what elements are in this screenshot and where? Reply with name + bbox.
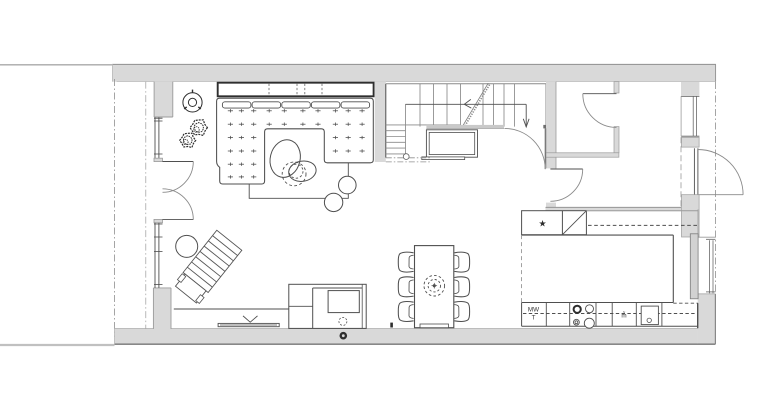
svg-text:T: T: [532, 315, 536, 322]
svg-text:MW: MW: [528, 307, 539, 314]
svg-text:★: ★: [538, 219, 546, 229]
svg-text:m̃: m̃: [621, 311, 626, 319]
